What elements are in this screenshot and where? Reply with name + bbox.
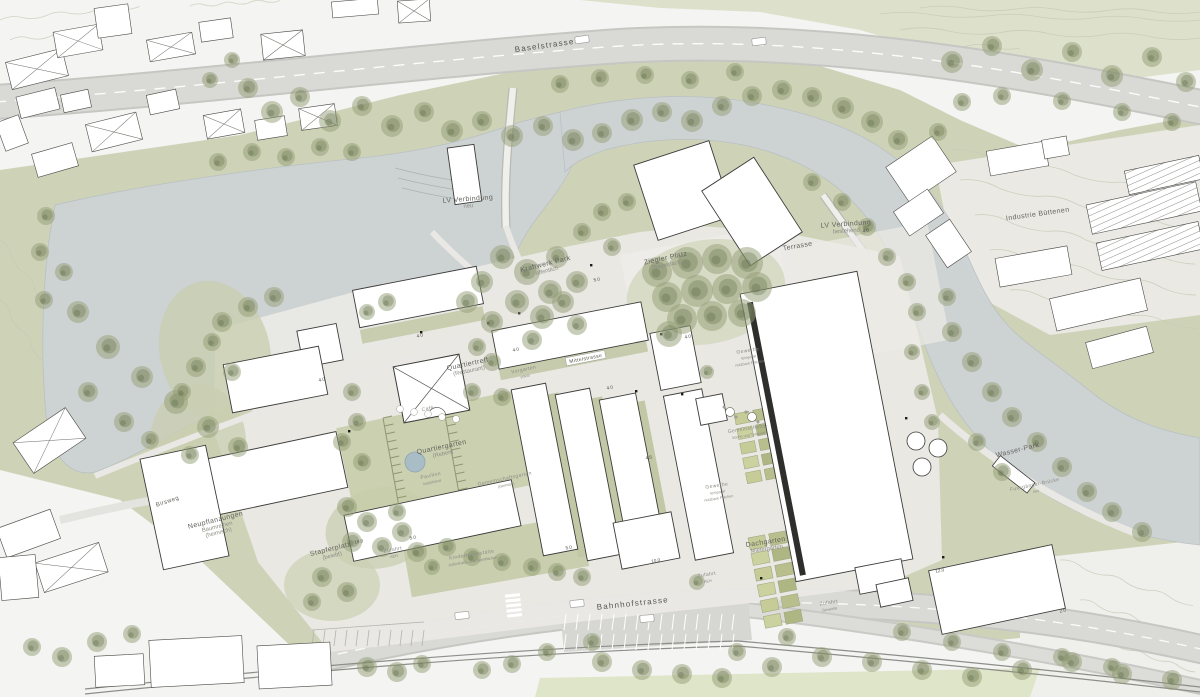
- tree: [490, 245, 514, 269]
- tree: [243, 143, 261, 161]
- tree: [726, 63, 744, 81]
- tree: [530, 305, 554, 329]
- tree: [942, 322, 962, 342]
- site-plan-svg: BaselstrasseBahnhofstrasseBirswegLV Verb…: [0, 0, 1200, 697]
- tree: [523, 558, 541, 576]
- tree: [343, 383, 361, 401]
- tree: [1052, 457, 1072, 477]
- tree: [212, 312, 232, 332]
- site-plan-canvas: BaselstrasseBahnhofstrasseBirswegLV Verb…: [0, 0, 1200, 697]
- tree: [468, 338, 486, 356]
- tree: [681, 71, 699, 89]
- tree: [197, 416, 219, 438]
- tree: [67, 301, 89, 323]
- tree: [387, 662, 407, 682]
- tree: [223, 363, 241, 381]
- entry-marker: [760, 577, 762, 579]
- vehicle: [752, 37, 767, 46]
- tree: [1102, 502, 1122, 522]
- tree: [888, 130, 908, 150]
- vehicle: [570, 599, 585, 607]
- tree: [1012, 660, 1032, 680]
- tree: [202, 72, 218, 88]
- tree: [456, 291, 478, 313]
- tree: [993, 643, 1011, 661]
- tree: [728, 643, 746, 661]
- tree: [1142, 47, 1162, 67]
- tree: [652, 102, 672, 122]
- tree: [357, 512, 377, 532]
- tree: [378, 293, 396, 311]
- tree: [290, 87, 310, 107]
- tree: [424, 559, 440, 575]
- tree: [1053, 92, 1071, 110]
- tree: [413, 655, 431, 673]
- tree: [173, 383, 191, 401]
- tree: [833, 193, 851, 211]
- tree: [23, 638, 41, 656]
- label-sub-lv-verbindung-neu: neu: [463, 203, 473, 210]
- tree: [203, 333, 221, 351]
- tree: [742, 86, 762, 106]
- tree: [968, 433, 986, 451]
- tree: [1021, 59, 1043, 81]
- context-building: [1042, 136, 1070, 159]
- tree: [1101, 65, 1123, 87]
- tree: [681, 110, 703, 132]
- tree: [348, 413, 366, 431]
- tree: [359, 304, 375, 320]
- building: [696, 394, 728, 426]
- tree: [702, 244, 732, 274]
- context-building: [397, 0, 430, 23]
- tree: [381, 115, 403, 137]
- tree: [1176, 72, 1196, 92]
- tree: [929, 123, 947, 141]
- tree: [552, 291, 574, 313]
- tree: [493, 388, 511, 406]
- tree: [1162, 670, 1182, 690]
- tree: [533, 116, 553, 136]
- tree: [303, 593, 321, 611]
- tree: [538, 643, 556, 661]
- tree: [908, 303, 926, 321]
- tree: [593, 203, 611, 221]
- tree: [333, 433, 351, 451]
- tree: [55, 263, 73, 281]
- tree: [522, 330, 542, 350]
- tree: [672, 664, 692, 684]
- tree: [31, 243, 49, 261]
- tree: [414, 102, 434, 122]
- tree: [1062, 42, 1082, 62]
- context-building: [199, 18, 233, 42]
- tree: [1163, 113, 1181, 131]
- tree: [812, 647, 832, 667]
- context-building: [94, 4, 132, 38]
- tree: [573, 223, 591, 241]
- tree: [224, 52, 240, 68]
- tree: [993, 87, 1011, 105]
- tree: [938, 288, 956, 306]
- tree: [1132, 522, 1152, 542]
- tree: [993, 463, 1011, 481]
- entry-marker: [942, 556, 944, 558]
- tree: [1077, 482, 1097, 502]
- tree: [473, 661, 491, 679]
- tree: [181, 446, 199, 464]
- tree: [636, 66, 654, 84]
- tree: [982, 36, 1002, 56]
- tree: [803, 173, 821, 191]
- tree: [463, 383, 481, 401]
- tree: [471, 271, 493, 293]
- tree: [742, 272, 772, 302]
- tree: [37, 207, 55, 225]
- tree: [862, 652, 882, 672]
- tree: [551, 75, 569, 93]
- tree: [319, 110, 341, 132]
- tree: [712, 668, 732, 688]
- tree: [114, 412, 134, 432]
- tree: [583, 633, 601, 651]
- entry-marker: [590, 264, 592, 266]
- tree: [548, 563, 566, 581]
- tree: [96, 335, 120, 359]
- tree: [893, 623, 911, 641]
- tree: [592, 123, 612, 143]
- tree: [912, 660, 932, 680]
- tree: [407, 542, 427, 562]
- tree: [700, 365, 714, 379]
- tree: [52, 647, 72, 667]
- tree: [953, 93, 971, 111]
- tree: [904, 344, 920, 360]
- tree: [778, 628, 796, 646]
- tree: [209, 153, 227, 171]
- tree: [438, 538, 456, 556]
- entry-marker: [681, 393, 683, 395]
- tree: [238, 78, 258, 98]
- entry-marker: [348, 430, 350, 432]
- tree: [962, 667, 982, 687]
- vehicle: [640, 614, 655, 622]
- tree: [141, 431, 159, 449]
- tree: [481, 311, 503, 333]
- tree: [728, 299, 756, 327]
- tree: [697, 301, 727, 331]
- tree: [573, 568, 591, 586]
- tree: [914, 384, 930, 400]
- tree: [567, 315, 587, 335]
- tree: [441, 120, 463, 142]
- tree: [898, 273, 916, 291]
- tree: [78, 382, 98, 402]
- tree: [388, 503, 406, 521]
- tree: [131, 366, 153, 388]
- tree: [762, 657, 782, 677]
- tree: [592, 652, 612, 672]
- tree: [312, 567, 332, 587]
- tree: [772, 80, 792, 100]
- tree: [1053, 648, 1071, 666]
- tree: [802, 87, 822, 107]
- tree: [472, 111, 492, 131]
- tree: [712, 274, 742, 304]
- tree: [1002, 407, 1022, 427]
- tree: [503, 655, 521, 673]
- tree: [337, 582, 357, 602]
- tree: [353, 453, 371, 471]
- tree: [1103, 658, 1121, 676]
- tree: [562, 129, 584, 151]
- tree: [832, 97, 854, 119]
- tree: [566, 271, 588, 293]
- context-building: [94, 654, 145, 688]
- tree: [982, 382, 1002, 402]
- tree: [264, 287, 284, 307]
- tree: [238, 297, 258, 317]
- context-building: [257, 642, 332, 689]
- tree: [357, 657, 377, 677]
- tree: [337, 497, 357, 517]
- tree: [261, 101, 283, 123]
- vehicle: [455, 611, 470, 619]
- context-building: [0, 554, 39, 600]
- entry-marker: [635, 390, 637, 392]
- tree: [878, 248, 896, 266]
- tree: [941, 51, 963, 73]
- tree: [277, 148, 295, 166]
- tree: [656, 321, 682, 347]
- tree: [603, 238, 621, 256]
- tree: [123, 625, 141, 643]
- tree: [87, 632, 107, 652]
- context-building: [149, 636, 244, 688]
- tree: [352, 96, 372, 116]
- tree: [228, 437, 248, 457]
- tree: [632, 660, 652, 680]
- tree: [712, 96, 732, 116]
- tree: [35, 291, 53, 309]
- tree: [501, 125, 523, 147]
- tree: [186, 357, 206, 377]
- tree: [621, 109, 643, 131]
- entry-marker: [905, 417, 907, 419]
- tree: [311, 138, 329, 156]
- tree: [343, 143, 361, 161]
- tree: [861, 111, 883, 133]
- tree: [1113, 103, 1131, 121]
- tree: [618, 193, 636, 211]
- tree: [943, 633, 961, 651]
- tree: [924, 414, 940, 430]
- tree: [505, 290, 529, 314]
- tree: [591, 69, 609, 87]
- tree: [962, 352, 982, 372]
